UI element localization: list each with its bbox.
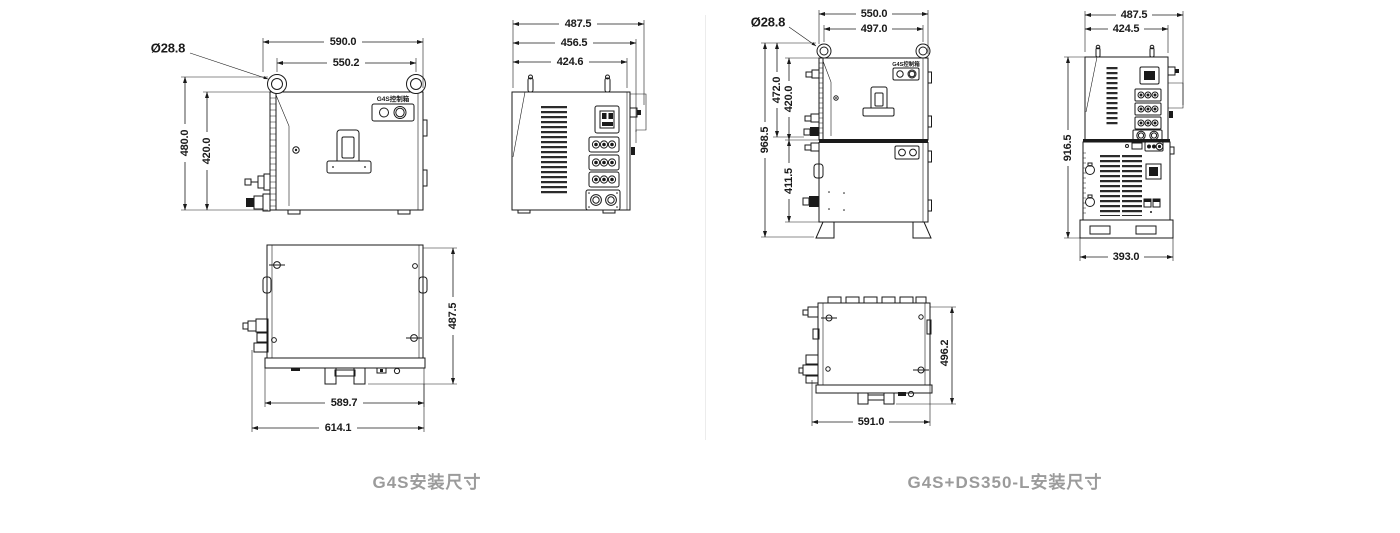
dim-width: 589.7 [331, 397, 358, 409]
left-drawing-caption: G4S安装尺寸 [327, 468, 527, 493]
dim-depth-mid: 456.5 [561, 37, 588, 49]
antenna-posts [528, 75, 610, 92]
dim-eyelet-diameter: Ø28.8 [151, 41, 185, 56]
dim-eyelet-diameter: Ø28.8 [751, 15, 785, 30]
dim-depth-outer: 487.5 [565, 18, 592, 30]
dim-height: 916.5 [1062, 135, 1074, 162]
dim-depth: 496.2 [939, 340, 951, 367]
dim-upper-height: 420.0 [783, 86, 795, 113]
top-edge-ribs [828, 297, 926, 303]
g4s-ds350-front-view: G4S控制箱 [747, 8, 932, 239]
rear-connectors [799, 355, 818, 383]
dim-depth-inner: 424.6 [557, 56, 584, 68]
dim-lower-height: 411.5 [783, 168, 795, 194]
right-drawing-caption: G4S+DS350-L安装尺寸 [875, 468, 1135, 493]
lifting-eyelets [268, 75, 426, 94]
dim-inner-width: 497.0 [861, 23, 888, 35]
dim-width-outer: 614.1 [325, 422, 352, 434]
g4s-ds350-dimension-drawing: G4S控制箱 [706, 0, 1400, 450]
device-label: G4S控制箱 [377, 94, 410, 103]
page: G4S控制箱 59 [0, 0, 1400, 533]
dim-top-width: 590.0 [330, 36, 357, 48]
dim-depth-inner: 424.5 [1113, 23, 1140, 35]
g4s-top-view: 487.5 589.7 614.1 [243, 245, 460, 435]
g4s-ds350-side-view: 487.5 424.5 916.5 393.0 [1062, 9, 1184, 264]
dim-inner-width: 550.2 [333, 57, 360, 69]
dim-base-width: 393.0 [1113, 251, 1140, 263]
side-connector-knobs [245, 174, 270, 211]
dim-top-width: 550.0 [861, 8, 888, 20]
dim-width: 591.0 [858, 416, 885, 428]
g4s-dimension-drawing: G4S控制箱 59 [0, 0, 706, 450]
g4s-side-view: 487.5 456.5 424.6 [512, 18, 646, 214]
dim-depth: 487.5 [447, 303, 459, 330]
dim-inner-height: 420.0 [201, 138, 213, 165]
device-label: G4S控制箱 [892, 60, 920, 68]
g4s-front-view: G4S控制箱 59 [146, 36, 427, 215]
upper-left-knobs [804, 70, 819, 136]
dim-upper-outer-height: 472.0 [771, 77, 783, 104]
g4s-ds350-top-view: 496.2 591.0 [799, 297, 956, 429]
dim-outer-height: 480.0 [179, 130, 191, 157]
rear-connectors [243, 319, 268, 352]
dim-total-height: 968.5 [759, 127, 771, 154]
dim-depth-outer: 487.5 [1121, 9, 1148, 21]
